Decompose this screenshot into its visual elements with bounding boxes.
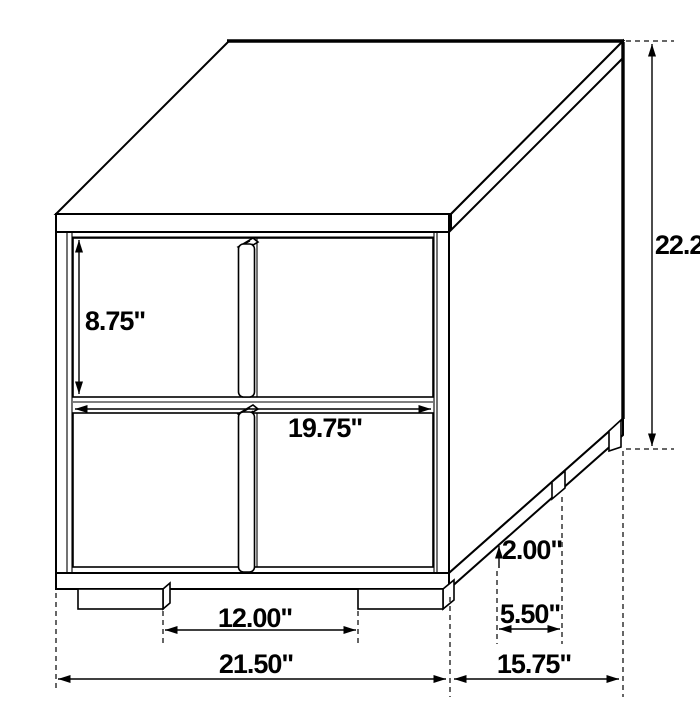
dimension-diagram: 8.75" 22.25" 19.75" 2.00" 5.50" xyxy=(40,16,700,716)
handle-bottom-bar xyxy=(239,412,255,572)
dim-leg-height: 2.00" xyxy=(499,535,562,568)
dim-overall-depth-label: 15.75" xyxy=(497,649,572,679)
top-board-front xyxy=(56,214,449,232)
dim-side-leg-spacing-label: 5.50" xyxy=(500,599,561,629)
plinth-front-band xyxy=(56,573,449,589)
dim-overall-width-label: 21.50" xyxy=(219,649,294,679)
diagram-canvas: 8.75" 22.25" 19.75" 2.00" 5.50" xyxy=(40,16,700,716)
dim-leg-height-label: 2.00" xyxy=(502,535,563,565)
dim-overall-height: 22.25" xyxy=(626,41,700,449)
leg-front-right-face xyxy=(358,589,443,609)
dim-opening-width-label: 19.75" xyxy=(288,413,363,443)
dim-front-leg-spacing: 12.00" xyxy=(163,603,358,644)
drawer-handle-top xyxy=(238,238,258,397)
leg-front-left-face xyxy=(78,589,163,609)
dim-overall-height-label: 22.25" xyxy=(655,230,700,260)
dim-front-leg-spacing-label: 12.00" xyxy=(218,603,293,633)
handle-top-bar xyxy=(239,244,255,397)
dim-drawer-height-label: 8.75" xyxy=(85,306,146,336)
drawer-handle-bottom xyxy=(238,405,258,572)
